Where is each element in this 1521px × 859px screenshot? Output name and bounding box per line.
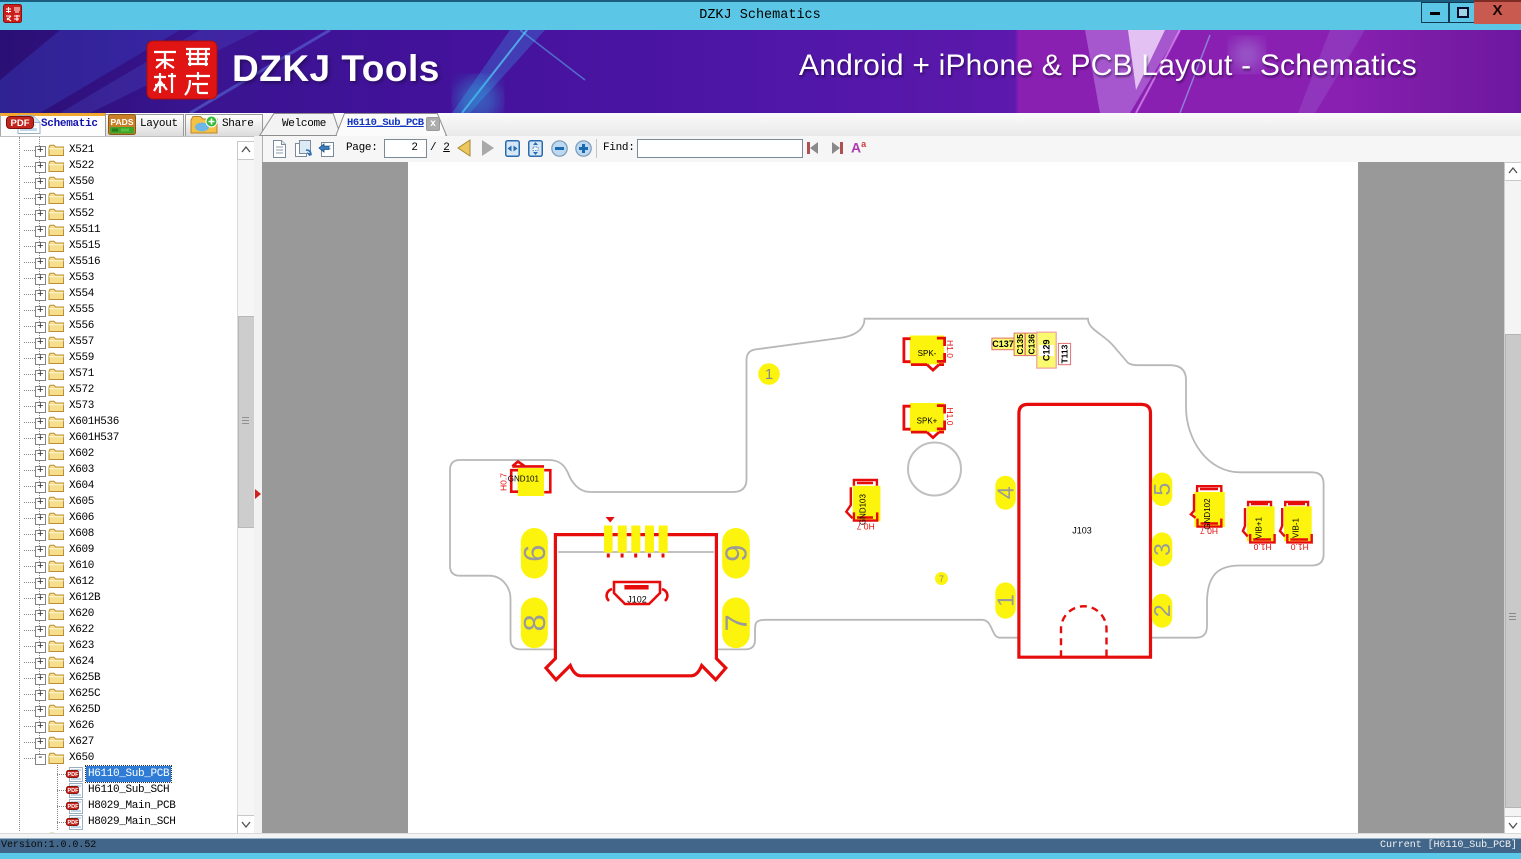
svg-text:PDF: PDF: [68, 788, 80, 794]
svg-text:7: 7: [939, 574, 944, 584]
svg-text:H1.0: H1.0: [1291, 542, 1309, 552]
svg-text:3: 3: [1149, 543, 1175, 556]
svg-text:VIB+1: VIB+1: [1254, 516, 1263, 539]
svg-text:C135: C135: [1015, 334, 1025, 355]
svg-text:VIB-1: VIB-1: [1292, 517, 1301, 538]
svg-text:GND102: GND102: [1203, 498, 1212, 530]
svg-text:H1.0: H1.0: [945, 408, 955, 426]
svg-text:H0.7: H0.7: [856, 522, 874, 532]
svg-text:SPK-: SPK-: [918, 349, 937, 358]
svg-text:PDF: PDF: [11, 118, 30, 129]
svg-text:H0.7: H0.7: [1200, 526, 1218, 536]
svg-text:C136: C136: [1026, 334, 1036, 355]
svg-text:GND103: GND103: [858, 493, 867, 525]
svg-text:8: 8: [517, 614, 552, 631]
svg-text:H1.0: H1.0: [1253, 542, 1271, 552]
svg-text:C137: C137: [992, 339, 1014, 349]
svg-text:5: 5: [1149, 483, 1175, 496]
svg-text:C129: C129: [1042, 339, 1052, 361]
svg-text:J103: J103: [1072, 526, 1092, 536]
svg-text:H0.7: H0.7: [498, 473, 508, 491]
svg-text:6: 6: [517, 545, 552, 562]
svg-text:T113: T113: [1060, 344, 1070, 363]
svg-text:PADS: PADS: [111, 117, 134, 127]
svg-text:H1.0: H1.0: [945, 340, 955, 358]
svg-text:7: 7: [719, 614, 754, 631]
svg-text:PDF: PDF: [68, 772, 80, 778]
svg-text:PDF: PDF: [68, 820, 80, 826]
svg-text:1: 1: [993, 594, 1019, 607]
svg-text:SPK+: SPK+: [917, 417, 938, 426]
svg-text:PDF: PDF: [68, 804, 80, 810]
svg-text:9: 9: [719, 545, 754, 562]
svg-text:J102: J102: [627, 595, 647, 605]
svg-text:1: 1: [765, 366, 773, 383]
svg-text:4: 4: [993, 486, 1019, 499]
svg-text:GND101: GND101: [508, 474, 540, 483]
svg-text:2: 2: [1149, 604, 1175, 617]
